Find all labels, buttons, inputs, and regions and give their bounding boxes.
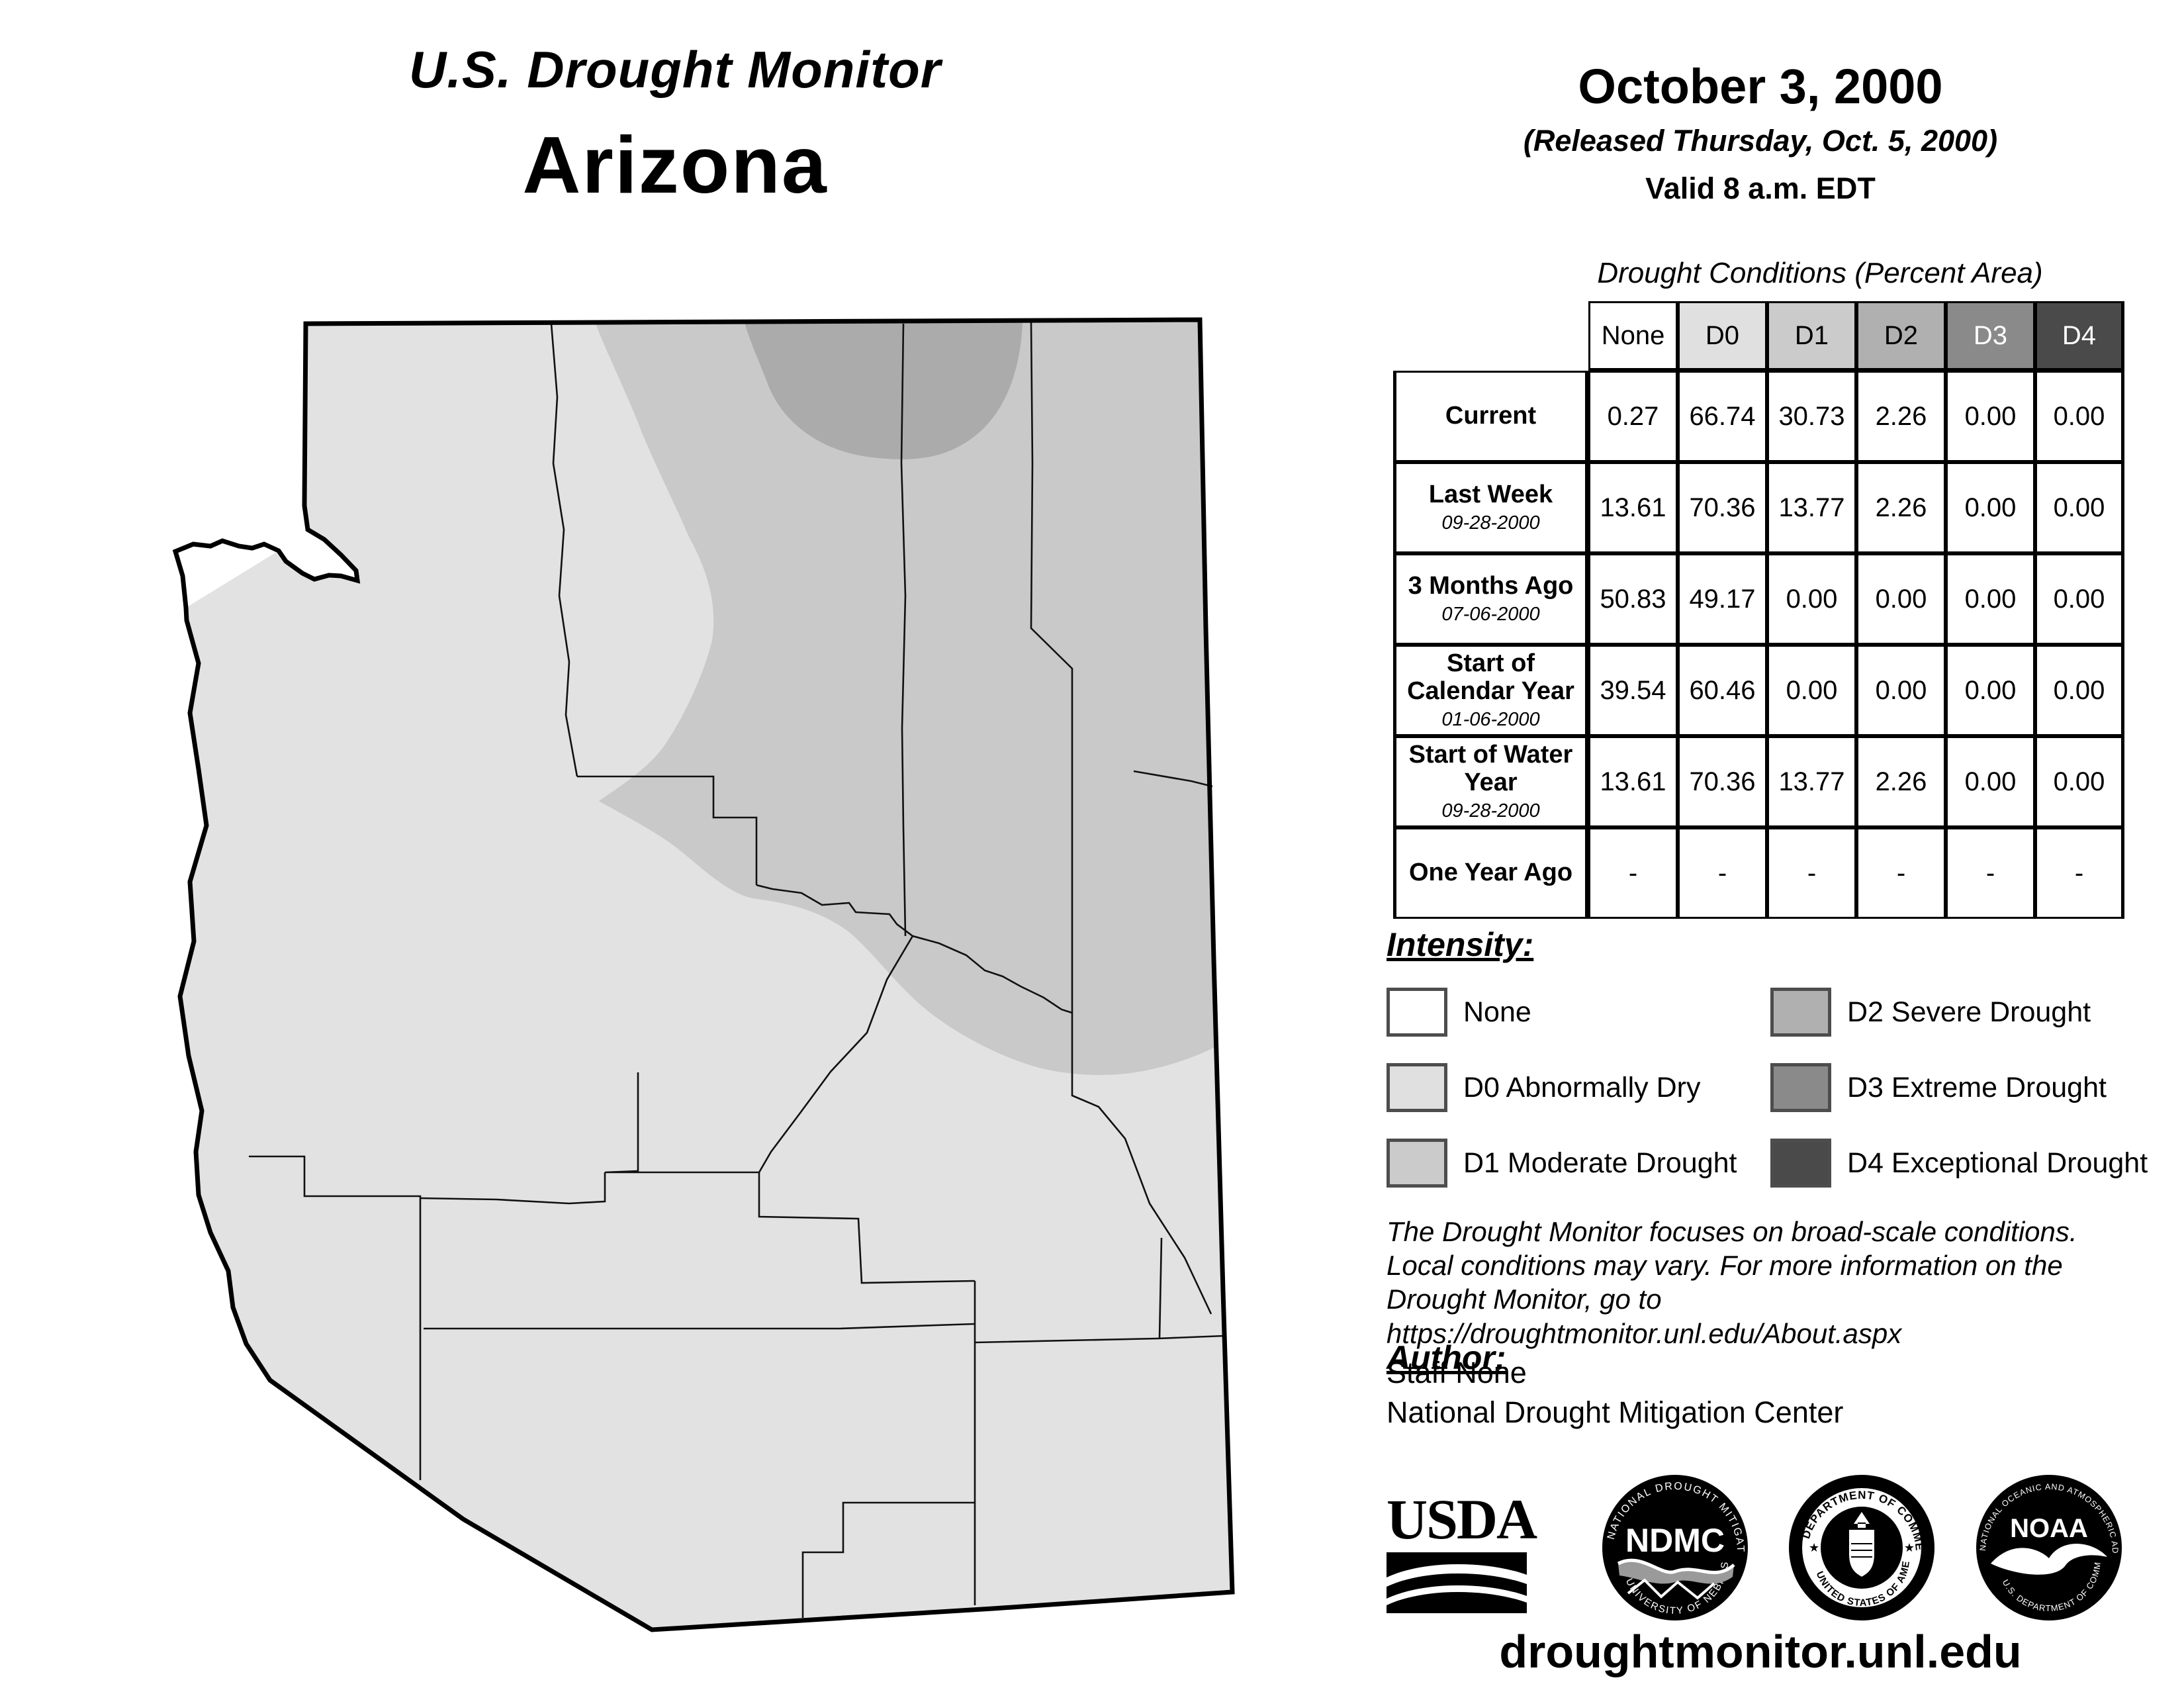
row-label: Start of Calendar Year 01-06-2000 [1393,645,1588,736]
legend-item-d0: D0 Abnormally Dry [1387,1063,1700,1112]
footer-url: droughtmonitor.unl.edu [1393,1625,2128,1678]
table-cell: 50.83 [1588,553,1678,645]
table-cell: 13.61 [1588,736,1678,827]
row-label: Current [1393,371,1588,462]
legend-swatch-none [1387,988,1447,1037]
table-cell: 13.77 [1767,736,1856,827]
ndmc-wordmark: NDMC [1625,1522,1725,1559]
legend-item-d3: D3 Extreme Drought [1770,1063,2107,1112]
legend-swatch-d1 [1387,1139,1447,1188]
table-cell: 60.46 [1678,645,1767,736]
table-cell: 0.00 [1946,645,2035,736]
col-header-d2: D2 [1856,301,1946,371]
table-cell: - [2035,827,2124,919]
noaa-logo: NATIONAL OCEANIC AND ATMOSPHERIC ADMINIS… [1972,1471,2126,1624]
arizona-drought-map [93,291,1310,1665]
map-date: October 3, 2000 [1393,58,2128,115]
legend-swatch-d2 [1770,988,1831,1037]
region-title: Arizona [159,118,1191,211]
table-cell: - [1678,827,1767,919]
col-header-d0: D0 [1678,301,1767,371]
table-cell: 0.00 [1946,371,2035,462]
table-cell: - [1856,827,1946,919]
title-block: U.S. Drought Monitor Arizona [159,40,1191,211]
table-cell: 0.00 [1767,553,1856,645]
row-label: Start of Water Year 09-28-2000 [1393,736,1588,827]
ndmc-logo: NATIONAL DROUGHT MITIGATION CENTER UNIVE… [1598,1471,1752,1624]
commerce-seal-logo: DEPARTMENT OF COMMERCE UNITED STATES OF … [1785,1471,1938,1624]
row-label: Last Week 09-28-2000 [1393,462,1588,553]
usda-swoosh-icon [1387,1552,1527,1613]
table-cell: 66.74 [1678,371,1767,462]
author-name: Staff None [1387,1356,1527,1390]
legend-title: Intensity: [1387,925,1533,964]
table-cell: - [1588,827,1678,919]
table-cell: 0.00 [1856,553,1946,645]
legend-item-none: None [1387,988,1531,1037]
table-cell: 2.26 [1856,371,1946,462]
table-cell: 13.77 [1767,462,1856,553]
table-cell: 2.26 [1856,462,1946,553]
table-cell: 0.00 [1946,553,2035,645]
drought-conditions-table: None D0 D1 D2 D3 D4 Current 0.27 66.74 3… [1393,301,2124,919]
date-block: October 3, 2000 (Released Thursday, Oct.… [1393,58,2128,206]
table-cell: 39.54 [1588,645,1678,736]
table-cell: - [1767,827,1856,919]
table-cell: 0.00 [2035,553,2124,645]
doc-shield-icon [1848,1529,1875,1577]
table-cell: 0.00 [1946,462,2035,553]
released-date: (Released Thursday, Oct. 5, 2000) [1393,124,2128,158]
table-cell: 0.00 [2035,736,2124,827]
table-cell: 0.00 [2035,462,2124,553]
legend-item-d4: D4 Exceptional Drought [1770,1139,2148,1188]
legend-swatch-d4 [1770,1139,1831,1188]
valid-time: Valid 8 a.m. EDT [1393,171,2128,206]
table-cell: 0.00 [1856,645,1946,736]
row-label: One Year Ago [1393,827,1588,919]
col-header-d1: D1 [1767,301,1856,371]
doc-star-left: ★ [1809,1541,1819,1554]
legend-item-d1: D1 Moderate Drought [1387,1139,1737,1188]
table-cell: 70.36 [1678,736,1767,827]
legend-item-d2: D2 Severe Drought [1770,988,2091,1037]
table-cell: 0.00 [1946,736,2035,827]
table-cell: 2.26 [1856,736,1946,827]
table-corner [1393,301,1588,371]
doc-star-right: ★ [1904,1541,1915,1554]
table-cell: 0.00 [2035,371,2124,462]
noaa-wordmark: NOAA [2010,1514,2088,1543]
table-cell: 13.61 [1588,462,1678,553]
table-cell: 30.73 [1767,371,1856,462]
table-cell: 0.00 [1767,645,1856,736]
col-header-d3: D3 [1946,301,2035,371]
col-header-d4: D4 [2035,301,2124,371]
table-cell: 0.00 [2035,645,2124,736]
row-label: 3 Months Ago 07-06-2000 [1393,553,1588,645]
col-header-none: None [1588,301,1678,371]
usda-logo: USDA [1387,1486,1536,1617]
table-cell: 0.27 [1588,371,1678,462]
table-cell: 49.17 [1678,553,1767,645]
page-title: U.S. Drought Monitor [159,40,1191,100]
author-organization: National Drought Mitigation Center [1387,1395,1843,1430]
table-cell: 70.36 [1678,462,1767,553]
table-title: Drought Conditions (Percent Area) [1489,257,2151,290]
legend-swatch-d3 [1770,1063,1831,1112]
legend-swatch-d0 [1387,1063,1447,1112]
table-cell: - [1946,827,2035,919]
disclaimer-text: The Drought Monitor focuses on broad-sca… [1387,1215,2184,1350]
